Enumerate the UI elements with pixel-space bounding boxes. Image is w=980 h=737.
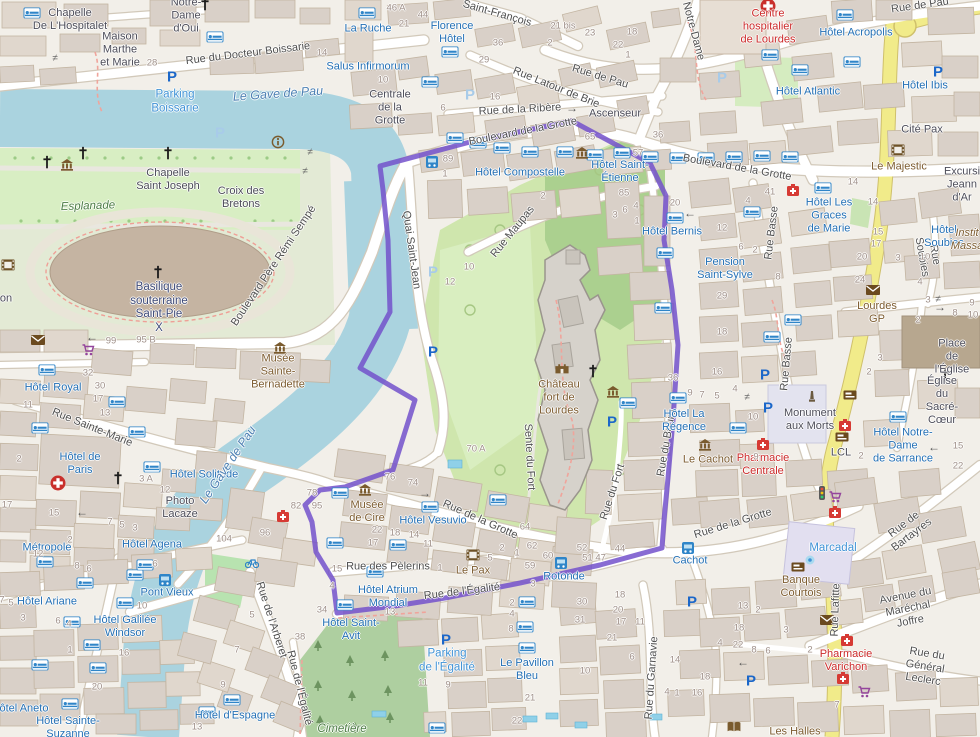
map-canvas[interactable]: PPPPPPPPPPPPP≠≠≠≠≠←←←←←←→→→ Chapelle De …: [0, 0, 980, 737]
map-base-tiles: [0, 0, 980, 737]
